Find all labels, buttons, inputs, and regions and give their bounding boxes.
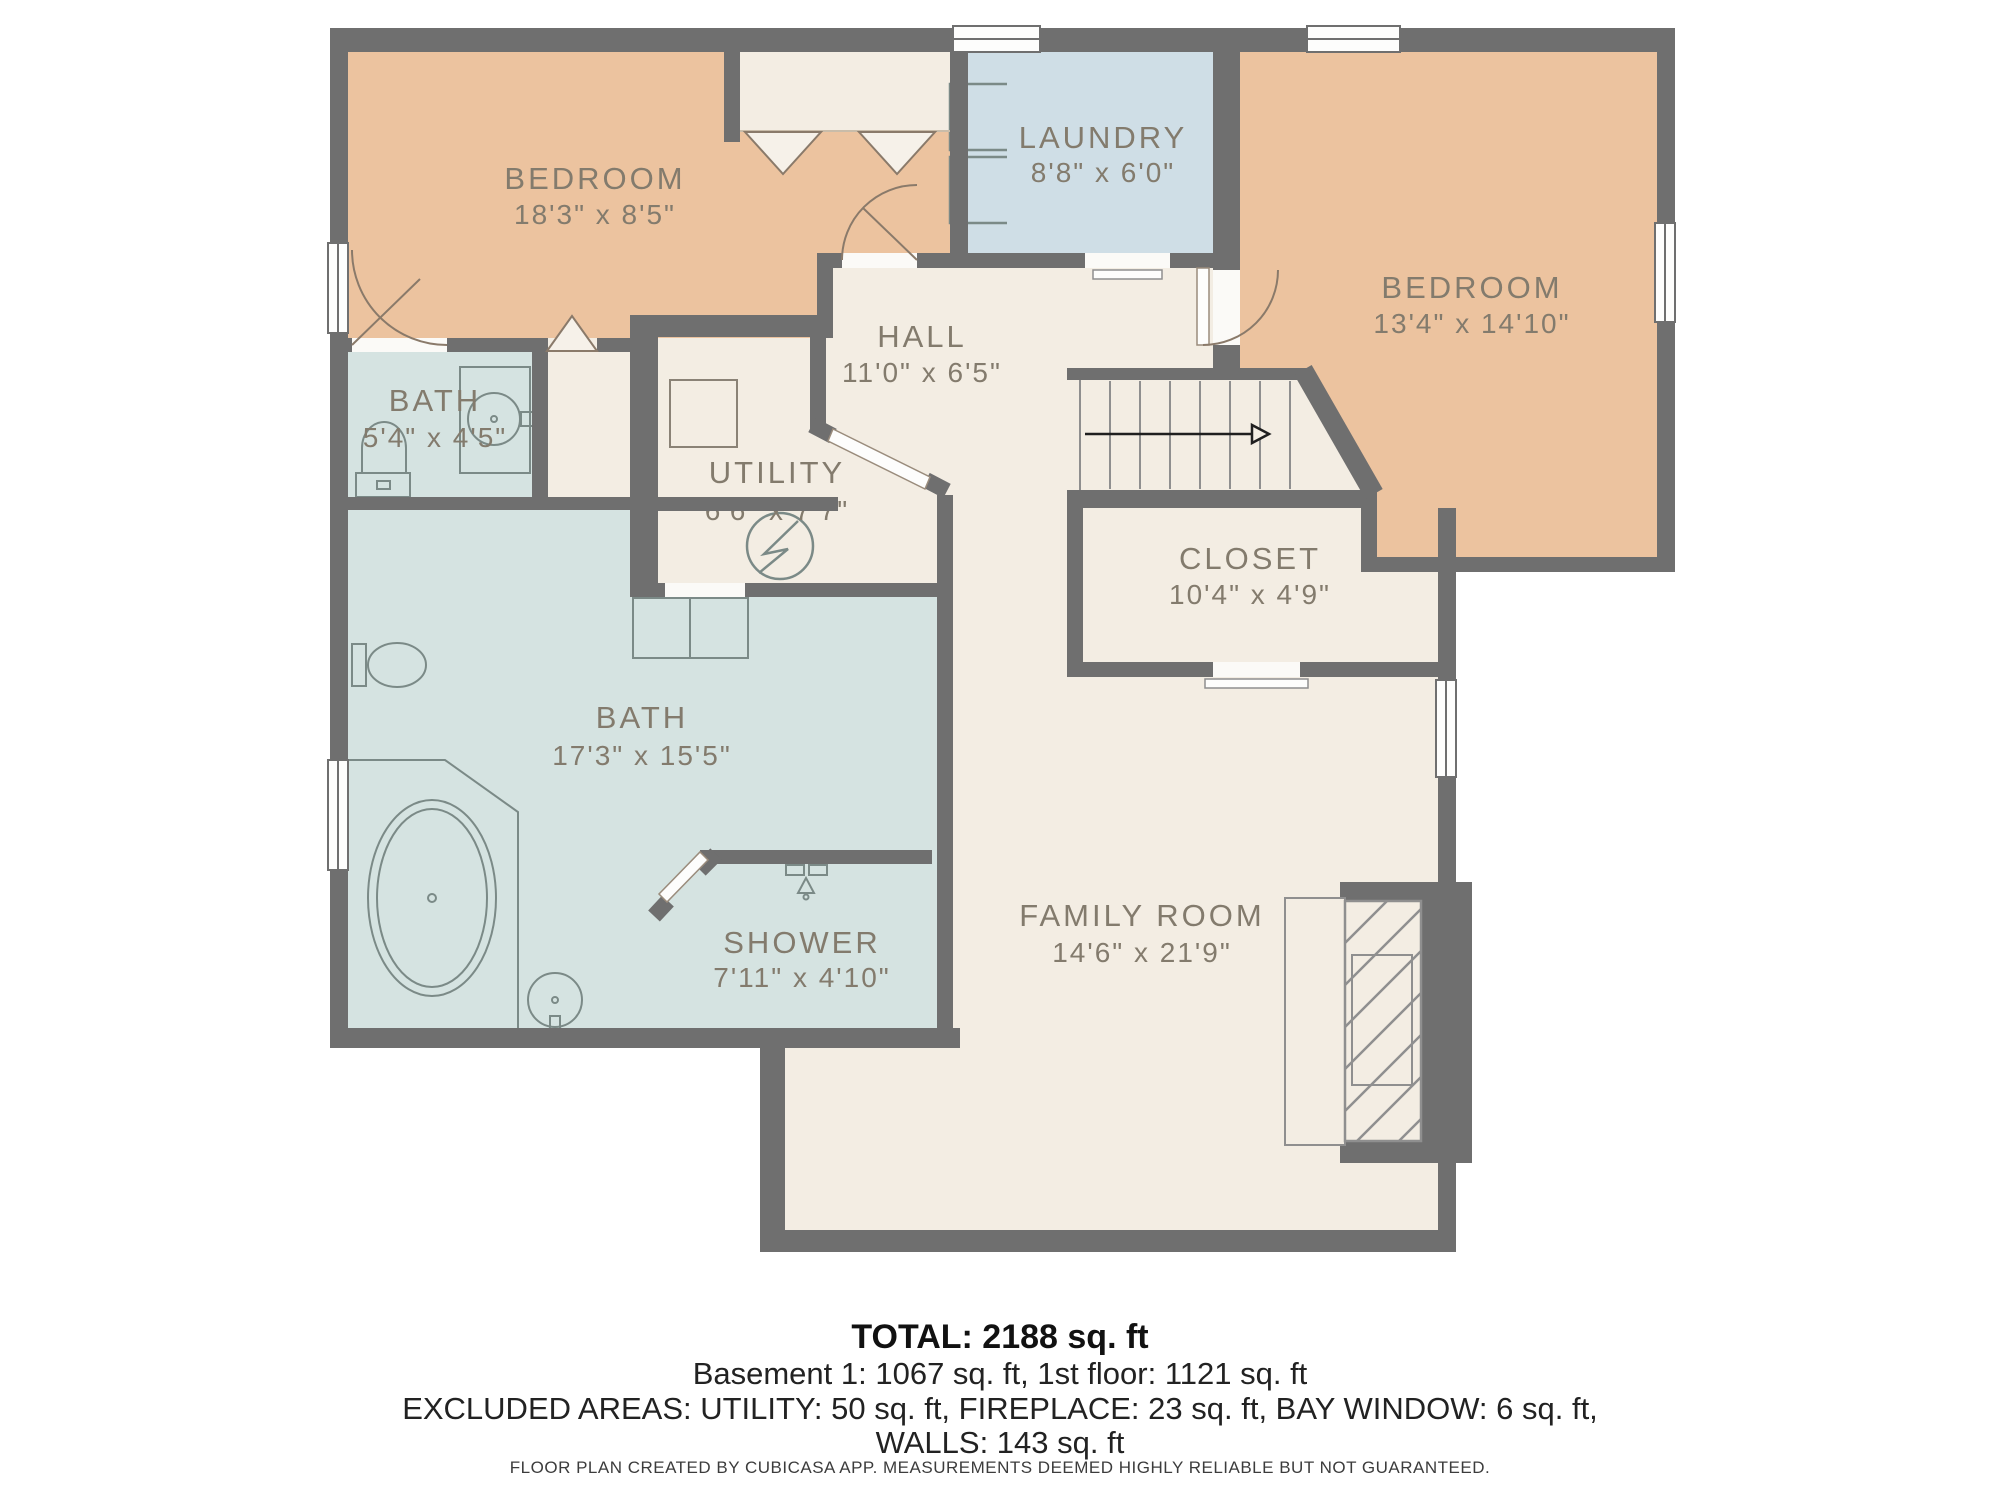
floor-plan: BEDROOM 18'3" x 8'5" LAUNDRY 8'8" x 6'0"… <box>0 0 2007 1505</box>
room-label: LAUNDRY <box>1019 120 1188 155</box>
room-dims-label: 18'3" x 8'5" <box>514 199 676 230</box>
door-jamb <box>926 480 947 491</box>
wall-over-utility-dims <box>658 497 838 511</box>
room-dims-label: 8'8" x 6'0" <box>1031 157 1175 188</box>
room-label: CLOSET <box>1179 541 1321 576</box>
door-opening <box>1085 253 1170 268</box>
summary: TOTAL: 2188 sq. ft Basement 1: 1067 sq. … <box>402 1318 1598 1477</box>
room-label: UTILITY <box>709 455 845 490</box>
summary-total: TOTAL: 2188 sq. ft <box>851 1318 1148 1356</box>
room-dims-label: 10'4" x 4'9" <box>1169 579 1331 610</box>
room-dims-label: 5'4" x 4'5" <box>363 422 507 453</box>
window-icon <box>328 760 348 870</box>
door-leaf <box>1197 268 1209 345</box>
window-icon <box>953 26 1040 52</box>
door-opening <box>352 338 447 352</box>
window-icon <box>1436 680 1456 777</box>
room-dims-label: 17'3" x 15'5" <box>552 740 732 771</box>
window-icon <box>1655 223 1675 322</box>
room-label: HALL <box>877 319 967 354</box>
room-label: SHOWER <box>723 925 881 960</box>
room-label: FAMILY ROOM <box>1019 898 1264 933</box>
door-jamb <box>654 901 668 916</box>
door-opening <box>665 583 745 597</box>
room-label: BEDROOM <box>504 161 685 196</box>
bedroom-closet-alcove <box>740 52 950 131</box>
door-opening <box>1213 662 1300 677</box>
fireplace-icon <box>1285 898 1421 1145</box>
summary-excluded-1: EXCLUDED AREAS: UTILITY: 50 sq. ft, FIRE… <box>402 1391 1598 1426</box>
room-label: BATH <box>389 383 481 418</box>
sliding-door <box>1205 679 1308 688</box>
door-opening <box>1213 270 1240 345</box>
summary-excluded-2: WALLS: 143 sq. ft <box>876 1425 1125 1460</box>
door-jamb <box>812 425 833 436</box>
window-icon <box>328 243 348 333</box>
summary-disclaimer: FLOOR PLAN CREATED BY CUBICASA APP. MEAS… <box>510 1458 1490 1477</box>
room-label: BEDROOM <box>1381 270 1562 305</box>
room-dims-label: 13'4" x 14'10" <box>1373 308 1570 339</box>
room-dims-label: 11'0" x 6'5" <box>842 357 1002 388</box>
window-icon <box>1307 26 1400 52</box>
floor-plan-page: BEDROOM 18'3" x 8'5" LAUNDRY 8'8" x 6'0"… <box>0 0 2007 1505</box>
room-dims-label: 7'11" x 4'10" <box>713 962 890 993</box>
threshold <box>1093 270 1162 279</box>
room-label: BATH <box>596 700 688 735</box>
room-dims-label: 14'6" x 21'9" <box>1052 937 1232 968</box>
door-opening <box>842 253 917 268</box>
summary-floors: Basement 1: 1067 sq. ft, 1st floor: 1121… <box>693 1356 1308 1391</box>
